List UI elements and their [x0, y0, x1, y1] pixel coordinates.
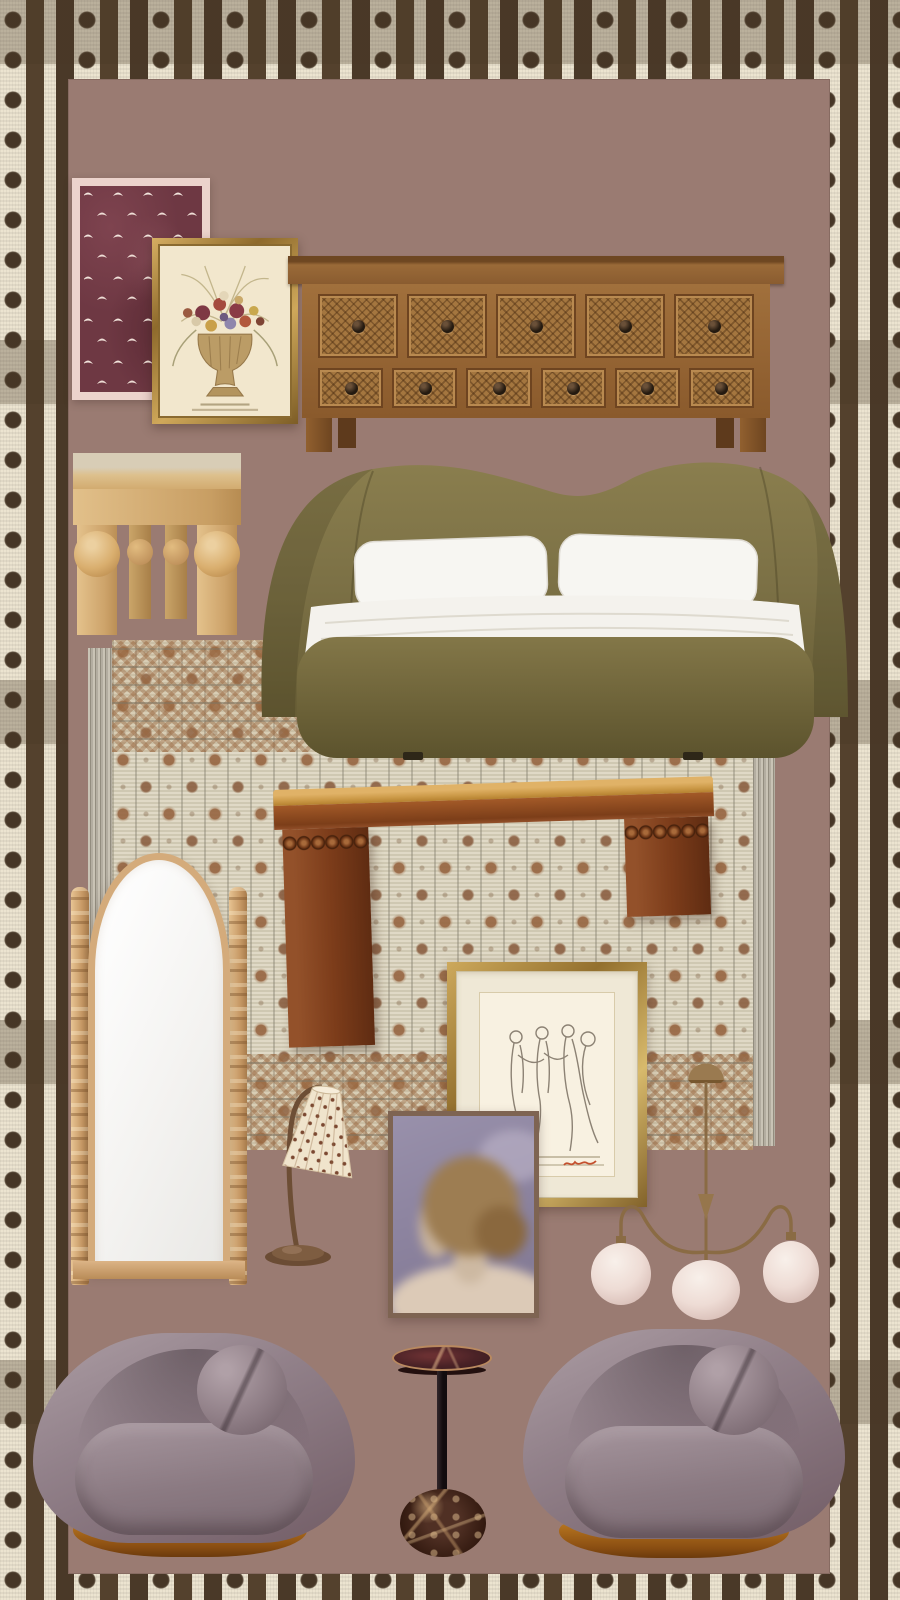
drawer-pull-icon [567, 382, 580, 395]
mirror-bottom-rail [73, 1261, 245, 1279]
table-top [73, 453, 241, 489]
drawer-pull-icon [619, 320, 632, 333]
marble-ball-base [400, 1489, 486, 1557]
drawer-pull-icon [493, 382, 506, 395]
mood-board [0, 0, 900, 1600]
console-drawer [615, 368, 680, 408]
table-apron [73, 489, 241, 525]
velvet-chair-left [33, 1333, 355, 1559]
lamp-base [265, 1245, 331, 1266]
console-drawer [466, 368, 531, 408]
mirror-post-right [229, 887, 247, 1285]
console-body [302, 284, 770, 418]
floor-mirror [71, 853, 247, 1285]
ceiling-cup [688, 1064, 724, 1081]
botanical-paper [160, 246, 290, 416]
console-drawer [318, 368, 383, 408]
table-back-ball [163, 539, 189, 565]
chair-seat-cushion [565, 1426, 803, 1538]
chair-ball-pillow [197, 1345, 287, 1435]
console-drawer [392, 368, 457, 408]
console-drawer-row-top [318, 294, 754, 358]
table-back-ball [127, 539, 153, 565]
console-leg [740, 418, 766, 452]
bouquet-illustration [160, 246, 290, 416]
console-drawer [689, 368, 754, 408]
chandelier-stem [705, 1082, 708, 1256]
chandelier [585, 1048, 823, 1320]
console-drawer-row-bottom [318, 368, 754, 408]
console-leg [306, 418, 332, 452]
drawer-pull-icon [708, 320, 721, 333]
drawer-pull-icon [345, 382, 358, 395]
bench-ball-row [282, 827, 369, 858]
chair-seat-cushion [75, 1423, 313, 1535]
table-lamp [252, 1058, 400, 1278]
drawer-pull-icon [530, 320, 543, 333]
portrait-canvas [393, 1116, 534, 1313]
portrait-hair-bun [475, 1206, 527, 1258]
chair-ball-pillow [689, 1345, 779, 1435]
bench-leg-left [282, 827, 375, 1048]
console-drawer [496, 294, 576, 358]
portrait-painting [388, 1111, 539, 1318]
oak-side-table [73, 443, 241, 635]
mirror-post-left [71, 887, 89, 1285]
lamp-shade [282, 1082, 362, 1177]
drawer-pull-icon [441, 320, 454, 333]
mirror-glass [88, 853, 230, 1273]
drawer-pull-icon [641, 382, 654, 395]
bench-ball-row [624, 816, 709, 847]
drawer-pull-icon [419, 382, 432, 395]
console-leg [338, 418, 356, 448]
table-ball [194, 531, 240, 577]
table-ball [74, 531, 120, 577]
console-drawer [318, 294, 398, 358]
console-leg [716, 418, 734, 448]
martini-side-table [392, 1345, 494, 1557]
bed-base [297, 637, 814, 760]
marble-table-top [392, 1345, 492, 1371]
drawer-pull-icon [715, 382, 728, 395]
console-drawer [674, 294, 754, 358]
console-drawer [585, 294, 665, 358]
velvet-chair-right [523, 1329, 845, 1562]
bench-leg-right [624, 816, 711, 917]
drawer-pull-icon [352, 320, 365, 333]
console-top [288, 256, 784, 284]
console-drawer [541, 368, 606, 408]
upholstered-bed [255, 455, 850, 760]
frame-inner-line [158, 244, 292, 418]
drawer-console [288, 256, 784, 452]
stem-finial [698, 1194, 714, 1220]
botanical-print [152, 238, 298, 424]
console-drawer [407, 294, 487, 358]
table-stem [437, 1371, 447, 1493]
